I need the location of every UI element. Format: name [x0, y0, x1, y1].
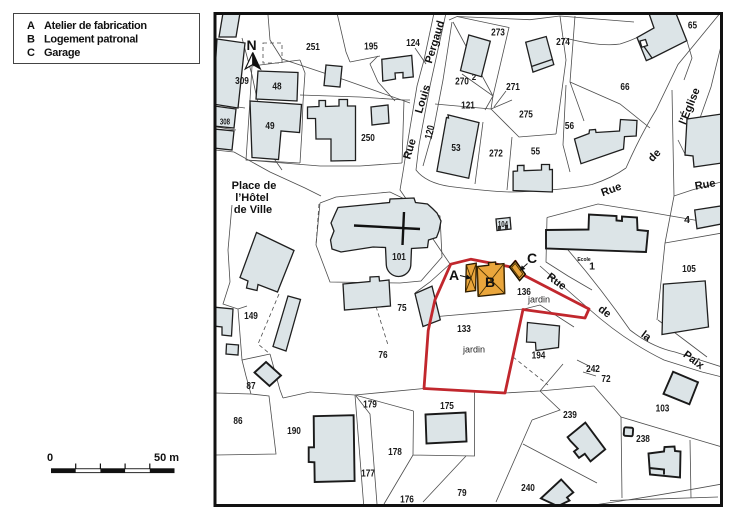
svg-text:55: 55 [531, 146, 540, 158]
svg-text:l’Hôtel: l’Hôtel [235, 192, 269, 204]
svg-text:72: 72 [601, 373, 610, 385]
svg-text:251: 251 [306, 41, 320, 53]
svg-text:1: 1 [589, 261, 595, 273]
svg-text:87: 87 [246, 380, 255, 392]
svg-text:48: 48 [272, 81, 281, 93]
svg-text:179: 179 [363, 399, 377, 411]
svg-text:270: 270 [455, 76, 469, 88]
svg-text:239: 239 [563, 409, 577, 421]
svg-text:250: 250 [361, 132, 375, 144]
svg-text:66: 66 [620, 81, 629, 93]
svg-text:56: 56 [565, 120, 574, 132]
svg-text:103: 103 [656, 403, 670, 415]
svg-text:101: 101 [392, 251, 406, 263]
svg-text:C: C [527, 250, 537, 266]
svg-text:A: A [27, 20, 35, 32]
svg-text:Atelier de fabrication: Atelier de fabrication [44, 20, 147, 32]
svg-text:133: 133 [457, 323, 471, 335]
svg-text:65: 65 [688, 20, 697, 32]
svg-text:jardin: jardin [462, 345, 485, 355]
svg-text:309: 309 [235, 75, 249, 87]
svg-text:190: 190 [287, 425, 301, 437]
svg-text:175: 175 [440, 400, 454, 412]
svg-text:121: 121 [461, 100, 475, 112]
svg-text:194: 194 [532, 350, 546, 362]
svg-text:0: 0 [47, 452, 53, 464]
svg-text:N: N [247, 37, 257, 53]
svg-text:4: 4 [684, 214, 690, 226]
svg-text:86: 86 [233, 415, 242, 427]
svg-text:de Ville: de Ville [234, 204, 272, 216]
svg-text:149: 149 [244, 310, 258, 322]
svg-text:53: 53 [451, 142, 460, 154]
svg-text:B: B [485, 274, 495, 290]
svg-text:274: 274 [556, 36, 570, 48]
svg-text:176: 176 [400, 494, 414, 506]
svg-text:2: 2 [472, 73, 477, 82]
svg-text:308: 308 [220, 118, 231, 127]
svg-text:271: 271 [506, 81, 520, 93]
svg-text:79: 79 [457, 487, 466, 499]
svg-text:Logement patronal: Logement patronal [44, 34, 138, 46]
svg-text:178: 178 [388, 446, 402, 458]
svg-text:275: 275 [519, 109, 533, 121]
svg-text:177: 177 [361, 468, 375, 480]
svg-text:273: 273 [491, 27, 505, 39]
svg-text:49: 49 [265, 120, 274, 132]
svg-text:272: 272 [489, 148, 503, 160]
svg-text:50 m: 50 m [154, 452, 179, 464]
svg-text:238: 238 [636, 433, 650, 445]
svg-text:C: C [27, 47, 35, 59]
svg-text:195: 195 [364, 41, 378, 53]
svg-text:240: 240 [521, 482, 535, 494]
svg-text:B: B [27, 34, 35, 46]
svg-text:jardin: jardin [527, 295, 550, 305]
svg-text:105: 105 [682, 263, 696, 275]
svg-text:76: 76 [378, 349, 387, 361]
svg-text:124: 124 [406, 37, 420, 49]
svg-text:104: 104 [498, 220, 509, 229]
svg-text:Garage: Garage [44, 47, 80, 59]
svg-text:75: 75 [397, 302, 406, 314]
svg-text:Place de: Place de [232, 180, 277, 192]
svg-text:A: A [449, 267, 459, 283]
